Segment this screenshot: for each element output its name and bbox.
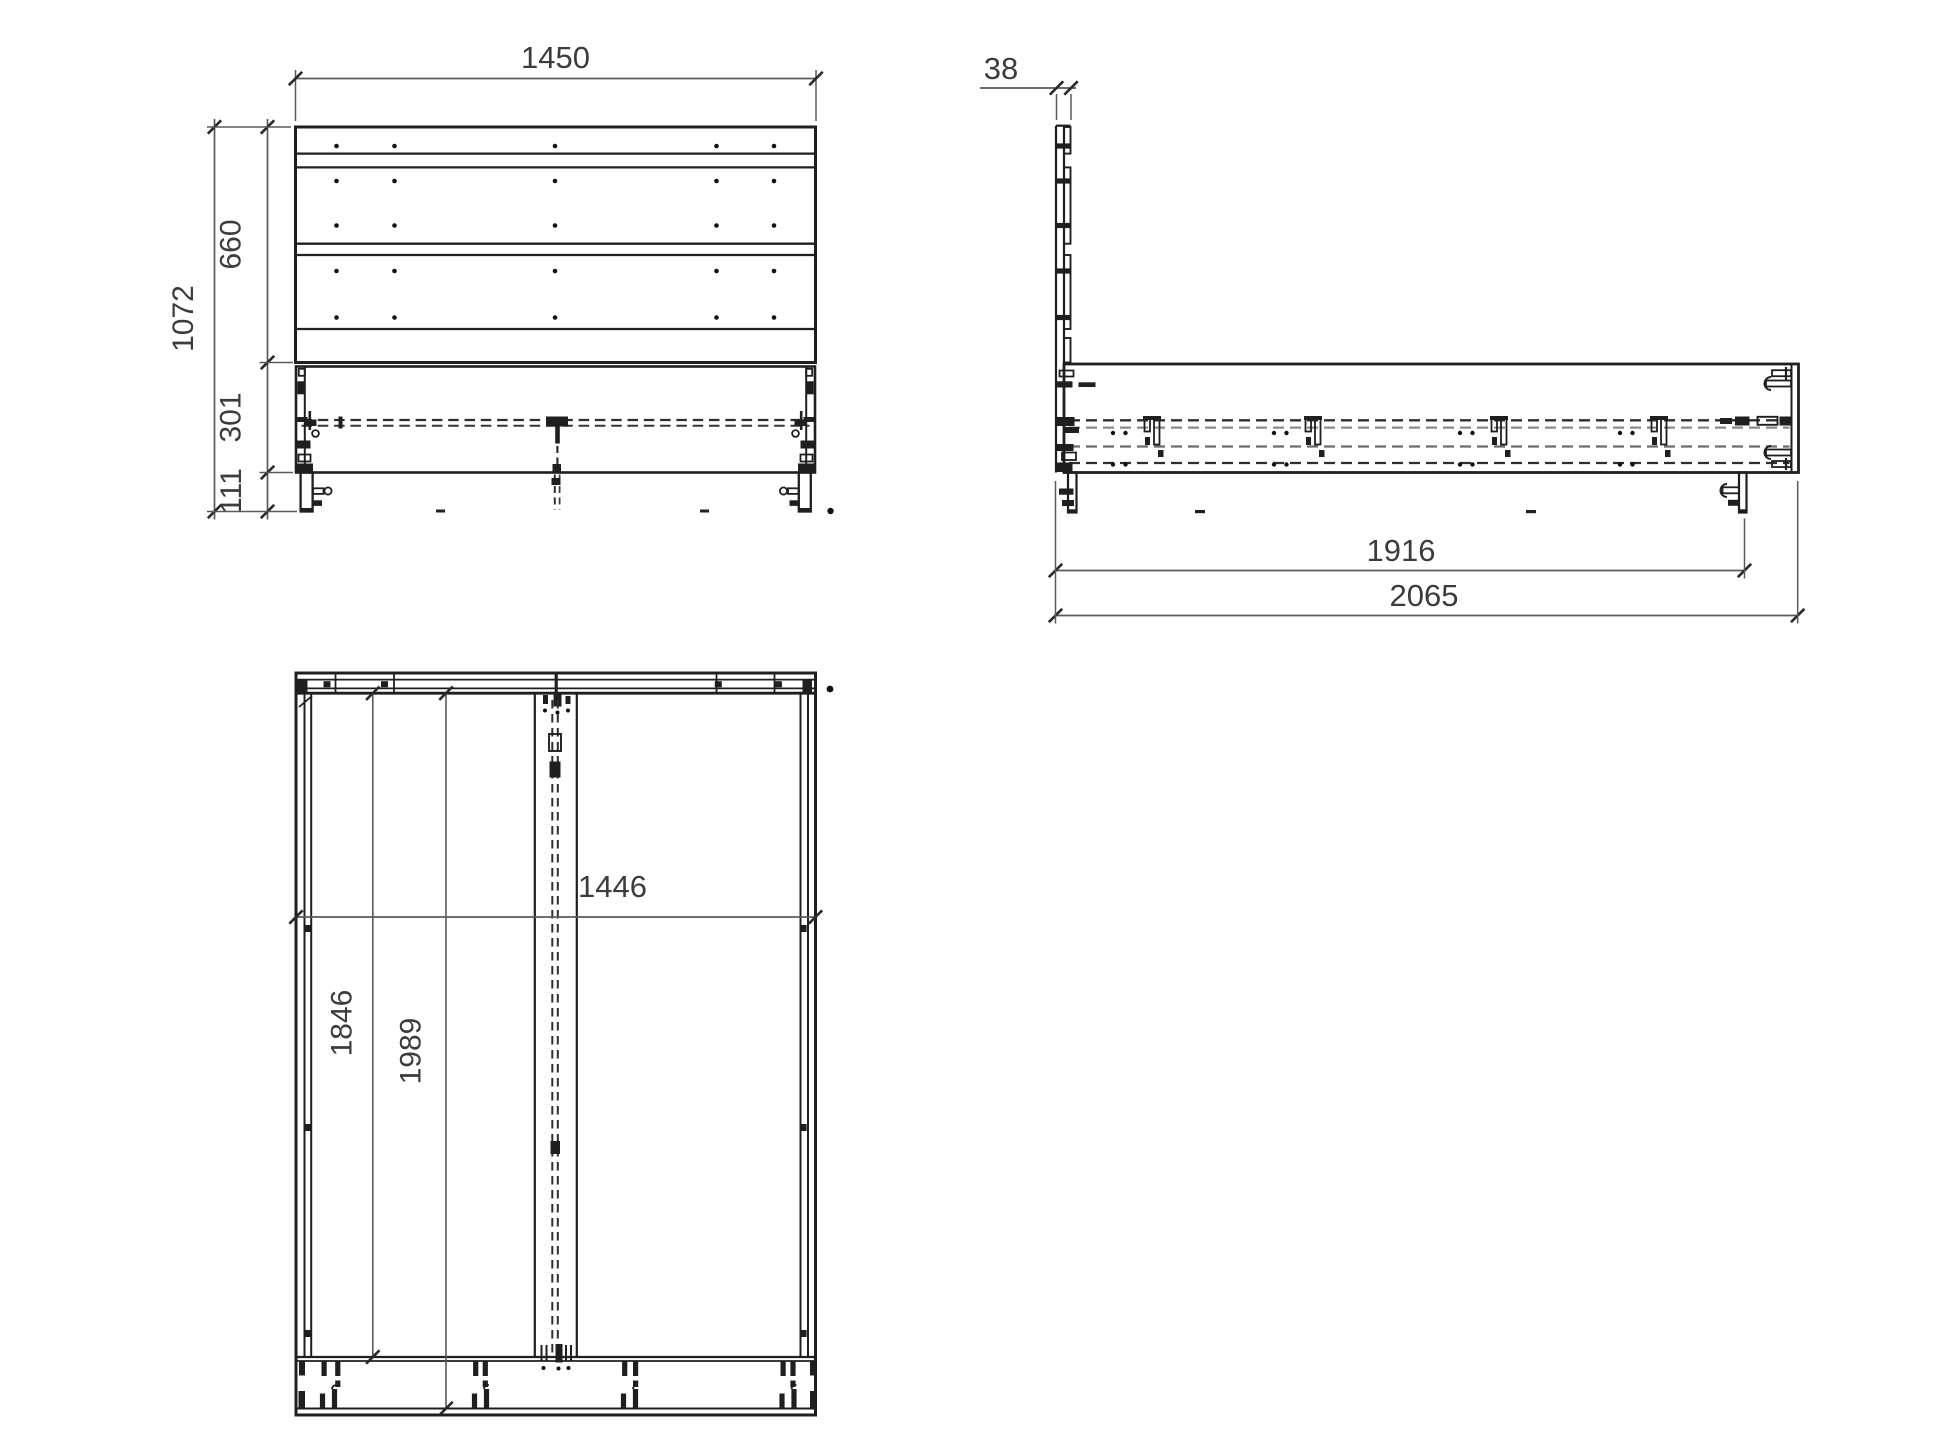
svg-text:111: 111 — [215, 468, 248, 514]
svg-text:1846: 1846 — [326, 990, 359, 1057]
svg-text:2065: 2065 — [1390, 578, 1459, 613]
svg-text:1989: 1989 — [395, 1018, 428, 1085]
svg-text:38: 38 — [984, 51, 1018, 86]
svg-text:1446: 1446 — [578, 869, 647, 904]
svg-text:1450: 1450 — [521, 40, 590, 75]
svg-text:660: 660 — [215, 219, 248, 269]
svg-text:1072: 1072 — [167, 285, 200, 352]
svg-text:301: 301 — [215, 392, 248, 442]
svg-text:1916: 1916 — [1367, 533, 1436, 568]
